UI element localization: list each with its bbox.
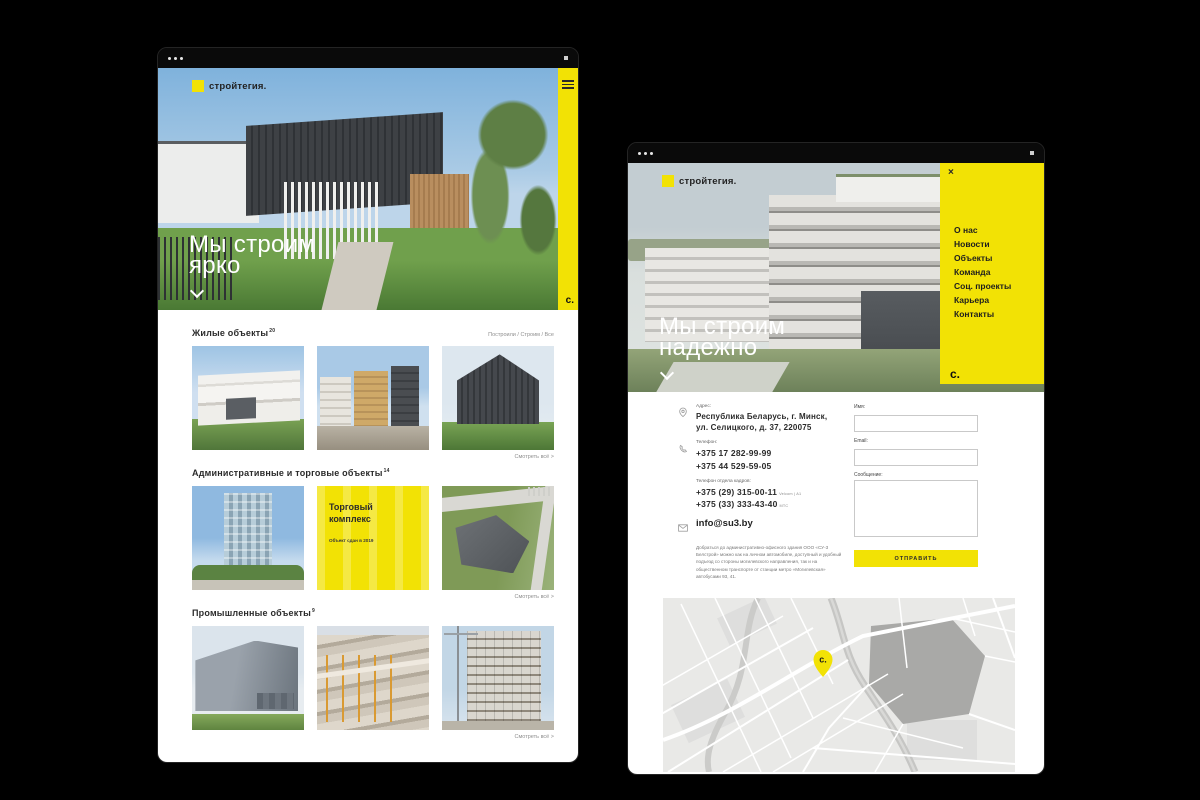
hr-phone-label: Телефон отдела кадров:	[696, 479, 850, 484]
menu-panel: × О нас Новости Объекты Команда Соц. про…	[940, 163, 1044, 384]
phone-number: +375 17 282-99-99	[696, 447, 771, 459]
contacts-section: Адрес: Республика Беларусь, г. Минск, ул…	[628, 392, 1044, 598]
window-titlebar	[158, 48, 578, 68]
map[interactable]: с.	[663, 598, 1015, 772]
project-thumbnail[interactable]	[317, 346, 429, 450]
email-label: Email:	[854, 438, 978, 444]
view-all-link[interactable]: Смотреть всё >	[192, 454, 554, 460]
featured-title: Торговый комплекс	[329, 502, 385, 525]
hr-phone-number: +375 (33) 333-43-40МТС	[696, 498, 850, 510]
project-thumbnail[interactable]	[442, 346, 554, 450]
view-all-link[interactable]: Смотреть всё >	[192, 594, 554, 600]
thumbnail-grid	[192, 626, 554, 730]
section-count: 20	[269, 328, 275, 334]
featured-subtitle: Объект сдан в 2019	[329, 538, 429, 543]
name-input[interactable]	[854, 415, 978, 432]
mail-icon	[678, 518, 688, 537]
window-titlebar	[628, 143, 1044, 163]
project-thumbnail[interactable]	[442, 626, 554, 730]
email-link[interactable]: info@su3.by	[696, 518, 753, 537]
arrow-right-icon: >	[551, 454, 554, 460]
close-icon[interactable]: ×	[948, 167, 954, 178]
menu-item-objects[interactable]: Объекты	[954, 251, 1011, 265]
main-menu: О нас Новости Объекты Команда Соц. проек…	[954, 223, 1011, 321]
menu-item-news[interactable]: Новости	[954, 237, 1011, 251]
menu-item-about[interactable]: О нас	[954, 223, 1011, 237]
projects-sections: Жилые объекты20 Построили / Строим / Все…	[158, 310, 578, 740]
email-input[interactable]	[854, 449, 978, 466]
project-thumbnail[interactable]	[192, 626, 304, 730]
contacts-page: стройтегия. × О нас Новости Объекты Кома…	[628, 163, 1044, 774]
menu-item-social-projects[interactable]: Соц. проекты	[954, 279, 1011, 293]
logo-text: стройтегия.	[679, 176, 737, 187]
section-title: Административные и торговые объекты14	[192, 468, 390, 478]
message-input[interactable]	[854, 480, 978, 537]
menu-item-team[interactable]: Команда	[954, 265, 1011, 279]
project-thumbnail[interactable]	[192, 486, 304, 590]
phone-label: Телефон:	[696, 440, 771, 445]
home-page: стройтегия. с. Мы строим ярко Жилые объе…	[158, 68, 578, 762]
phone-icon	[678, 440, 688, 472]
view-all-link[interactable]: Смотреть всё >	[192, 734, 554, 740]
map-pin-mark: с.	[819, 655, 827, 665]
section-title: Жилые объекты20	[192, 328, 275, 338]
hamburger-menu-icon[interactable]	[562, 80, 574, 91]
logo-square-icon	[192, 80, 204, 92]
section-title: Промышленные объекты9	[192, 608, 315, 618]
name-label: Имя:	[854, 404, 978, 410]
hero-title: Мы строим ярко	[189, 234, 315, 276]
window-close-icon[interactable]	[564, 56, 568, 60]
section-count: 14	[384, 468, 390, 474]
operator-label: МТС	[780, 504, 789, 508]
window-dots-icon	[638, 152, 653, 155]
project-thumbnail[interactable]	[192, 346, 304, 450]
contact-form: Имя: Email: Сообщение: ОТПРАВИТЬ	[854, 404, 978, 567]
browser-window-contacts: стройтегия. × О нас Новости Объекты Кома…	[627, 142, 1045, 775]
section-residential: Жилые объекты20 Построили / Строим / Все…	[192, 328, 554, 460]
hr-phone-number: +375 (29) 315-00-11Velcom | A1	[696, 486, 850, 498]
project-thumbnail[interactable]	[317, 626, 429, 730]
address: Республика Беларусь, г. Минск, ул. Селиц…	[696, 411, 827, 433]
contact-details: Адрес: Республика Беларусь, г. Минск, ул…	[678, 404, 850, 580]
hero-title: Мы строим надежно	[659, 316, 785, 358]
window-close-icon[interactable]	[1030, 151, 1034, 155]
section-industrial: Промышленные объекты9 Смотреть всё >	[192, 608, 554, 740]
logo-square-icon	[662, 175, 674, 187]
hero-contacts-photo: стройтегия. × О нас Новости Объекты Кома…	[628, 163, 1044, 392]
thumbnail-grid: Торговый комплекс Объект сдан в 2019	[192, 486, 554, 590]
brand-mark: с.	[566, 295, 574, 306]
section-administrative: Административные и торговые объекты14 То…	[192, 468, 554, 600]
logo-text: стройтегия.	[209, 81, 267, 92]
logo[interactable]: стройтегия.	[192, 80, 267, 92]
menu-item-career[interactable]: Карьера	[954, 293, 1011, 307]
section-count: 9	[312, 608, 315, 614]
browser-window-home: стройтегия. с. Мы строим ярко Жилые объе…	[157, 47, 579, 763]
thumbnail-grid	[192, 346, 554, 450]
presentation-canvas: стройтегия. с. Мы строим ярко Жилые объе…	[0, 0, 1200, 800]
hero-home-photo: стройтегия. с. Мы строим ярко	[158, 68, 578, 310]
hr-phones: Телефон отдела кадров: +375 (29) 315-00-…	[696, 479, 850, 511]
arrow-right-icon: >	[551, 594, 554, 600]
hero-title-line2: надежно	[659, 337, 785, 358]
projects-filter[interactable]: Построили / Строим / Все	[488, 332, 554, 338]
operator-label: Velcom | A1	[779, 492, 801, 496]
project-thumbnail[interactable]	[442, 486, 554, 590]
phone-number: +375 44 529-59-05	[696, 460, 771, 472]
featured-project-card[interactable]: Торговый комплекс Объект сдан в 2019	[317, 486, 429, 590]
side-accent-bar: с.	[558, 68, 578, 310]
brand-mark: с.	[950, 367, 960, 381]
logo[interactable]: стройтегия.	[662, 175, 737, 187]
message-label: Сообщение:	[854, 472, 978, 478]
directions-text: Добраться до административно-офисного зд…	[696, 544, 848, 581]
location-pin-icon	[678, 404, 688, 433]
address-label: Адрес:	[696, 404, 827, 409]
submit-button[interactable]: ОТПРАВИТЬ	[854, 550, 978, 567]
arrow-right-icon: >	[551, 734, 554, 740]
menu-item-contacts[interactable]: Контакты	[954, 307, 1011, 321]
hero-title-line2: ярко	[189, 255, 315, 276]
window-dots-icon	[168, 57, 183, 60]
